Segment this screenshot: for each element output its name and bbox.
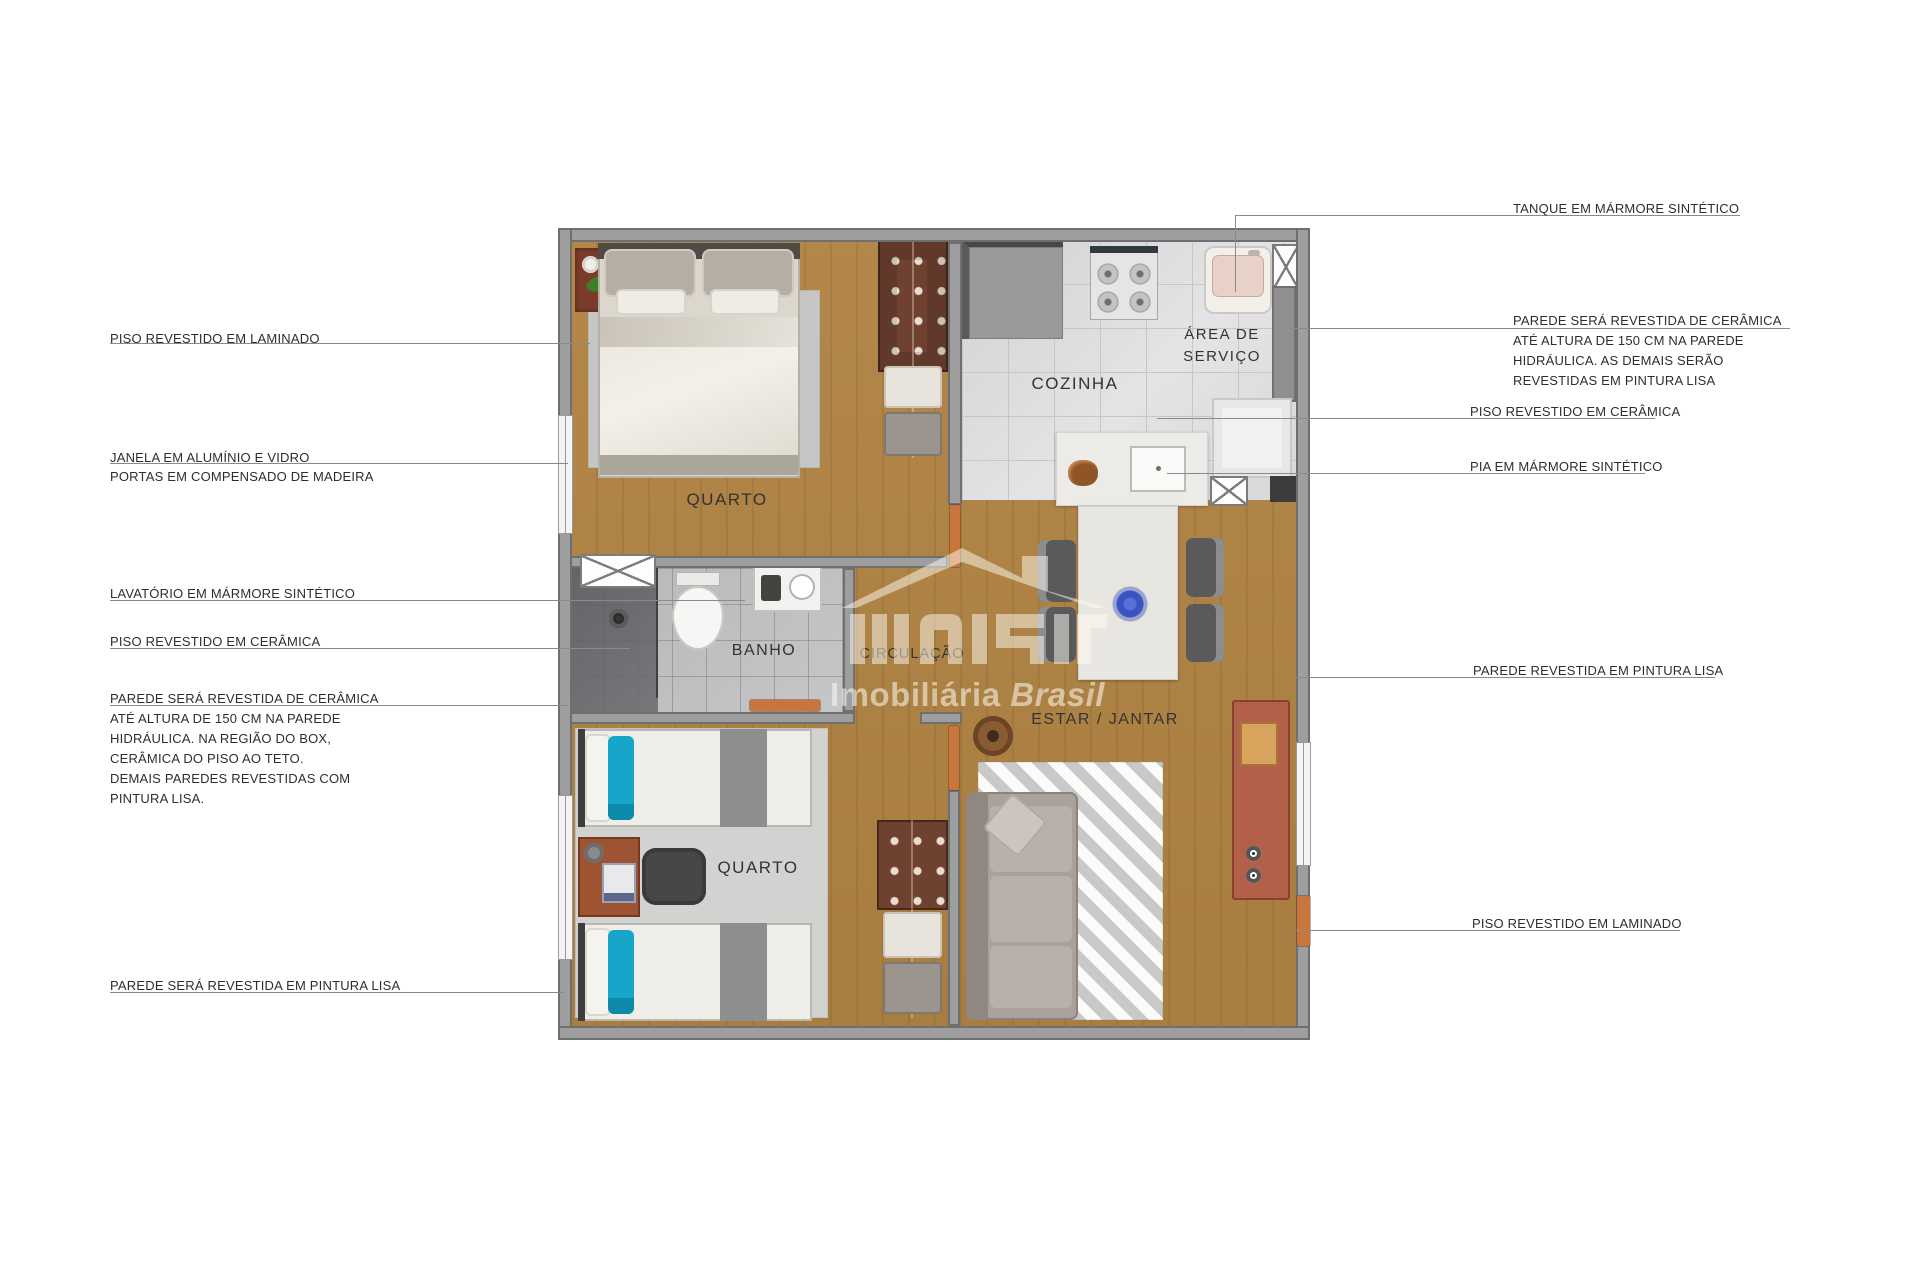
bread-basket-icon xyxy=(1068,460,1098,486)
annotation-pia: PIA EM MÁRMORE SINTÉTICO xyxy=(1470,457,1663,476)
wardrobe-box-gray xyxy=(883,962,942,1014)
room-label-quarto-top: QUARTO xyxy=(677,490,777,510)
wardrobe-box-white xyxy=(884,366,942,408)
dining-chair xyxy=(1186,538,1224,597)
pillow-blue xyxy=(608,930,634,1014)
area-servico-line1: ÁREA DE xyxy=(1162,324,1282,346)
dining-chair xyxy=(1038,540,1076,602)
pillow xyxy=(616,289,686,315)
wall-bathroom-bedroom2 xyxy=(570,712,855,724)
annotation-lavatorio: LAVATÓRIO EM MÁRMORE SINTÉTICO xyxy=(110,584,355,603)
area-servico-line2: SERVIÇO xyxy=(1162,346,1282,368)
annotation-line: HIDRÁULICA. AS DEMAIS SERÃO xyxy=(1513,351,1782,371)
dining-chair xyxy=(1038,607,1076,662)
laundry-tank xyxy=(1204,246,1272,314)
lamp-icon xyxy=(582,256,599,273)
annotation-line: ATÉ ALTURA DE 150 CM NA PAREDE xyxy=(110,709,379,729)
annotation-piso-ceramica-left: PISO REVESTIDO EM CERÂMICA xyxy=(110,632,320,651)
fridge xyxy=(962,240,1063,339)
washing-machine xyxy=(1212,398,1292,478)
wall-bedroom2-living xyxy=(948,790,960,1026)
annotation-line: LAVATÓRIO EM MÁRMORE SINTÉTICO xyxy=(110,584,355,603)
annotation-parede-pintura-right: PAREDE REVESTIDA EM PINTURA LISA xyxy=(1473,661,1723,680)
double-bed xyxy=(598,243,800,478)
bed-foot-band xyxy=(600,455,798,475)
sofa xyxy=(966,792,1078,1020)
office-chair xyxy=(642,848,706,905)
annotation-line: JANELA EM ALUMÍNIO E VIDRO xyxy=(110,448,374,467)
annotation-line: PISO REVESTIDO EM CERÂMICA xyxy=(1470,402,1680,421)
entry-door xyxy=(1297,896,1310,946)
annotation-line: PISO REVESTIDO EM LAMINADO xyxy=(110,329,320,348)
bed-runner xyxy=(720,729,767,827)
annotation-line: CERÂMICA DO PISO AO TETO. xyxy=(110,749,379,769)
room-label-area-servico: ÁREA DE SERVIÇO xyxy=(1162,324,1282,368)
pillow-blue xyxy=(608,736,634,820)
sofa-cushion xyxy=(990,876,1072,942)
desk xyxy=(578,837,640,917)
dining-chair xyxy=(1186,604,1224,662)
annotation-line: PORTAS EM COMPENSADO DE MADEIRA xyxy=(110,467,374,486)
stove-top-band xyxy=(1090,246,1158,253)
headboard xyxy=(578,923,585,1021)
room-label-estar-jantar: ESTAR / JANTAR xyxy=(1015,711,1195,729)
floor-plan-page: QUARTO COZINHA ÁREA DE SERVIÇO BANHO CIR… xyxy=(0,0,1920,1264)
living-window xyxy=(1296,742,1311,866)
annotation-piso-laminado-left: PISO REVESTIDO EM LAMINADO xyxy=(110,329,320,348)
sink-detail xyxy=(761,575,781,601)
annotation-line: PISO REVESTIDO EM CERÂMICA xyxy=(110,632,320,651)
flower-centerpiece-icon xyxy=(1112,586,1148,622)
annotation-line: ATÉ ALTURA DE 150 CM NA PAREDE xyxy=(1513,331,1782,351)
toilet-tank xyxy=(676,572,720,586)
room-label-banho: BANHO xyxy=(714,642,814,660)
annotation-line: PAREDE REVESTIDA EM PINTURA LISA xyxy=(1473,661,1723,680)
room-label-quarto-bottom: QUARTO xyxy=(708,858,808,878)
wall-bedroom1-kitchen xyxy=(948,242,962,505)
annotation-janela-portas: JANELA EM ALUMÍNIO E VIDRO PORTAS EM COM… xyxy=(110,448,374,486)
headboard xyxy=(578,729,585,827)
sink-faucet-icon xyxy=(1156,466,1161,471)
wardrobe-box-gray xyxy=(884,412,942,456)
bedroom1-door xyxy=(950,505,960,567)
annotation-line: PINTURA LISA. xyxy=(110,789,379,809)
shower-glass-line xyxy=(656,568,658,698)
speaker-icon xyxy=(1246,846,1261,861)
duct-dark-box xyxy=(1270,476,1296,502)
single-bed xyxy=(578,923,812,1021)
wardrobe-box-white xyxy=(883,912,942,958)
wall-bottom xyxy=(558,1026,1310,1040)
bathroom-window-x-icon xyxy=(580,554,656,588)
shower-dark-tiles xyxy=(570,568,658,712)
annotation-parede-ceramica-right: PAREDE SERÁ REVESTIDA DE CERÂMICA ATÉ AL… xyxy=(1513,311,1782,391)
blanket-fold xyxy=(600,317,798,347)
laptop-icon xyxy=(602,863,636,903)
annotation-line: REVESTIDAS EM PINTURA LISA xyxy=(1513,371,1782,391)
annotation-line: PAREDE SERÁ REVESTIDA DE CERÂMICA xyxy=(110,689,379,709)
annotation-tanque: TANQUE EM MÁRMORE SINTÉTICO xyxy=(1513,199,1739,218)
bathroom-shelf xyxy=(750,700,820,711)
tank-faucet-icon xyxy=(1248,250,1260,256)
annotation-line: PIA EM MÁRMORE SINTÉTICO xyxy=(1470,457,1663,476)
annotation-line: PAREDE SERÁ REVESTIDA EM PINTURA LISA xyxy=(110,976,400,995)
stove xyxy=(1090,246,1158,320)
room-label-circulacao: CIRCULAÇÃO xyxy=(837,646,987,662)
floor-plan: QUARTO COZINHA ÁREA DE SERVIÇO BANHO CIR… xyxy=(558,228,1310,1040)
bedroom2-window xyxy=(558,795,573,960)
wall-stub-hall xyxy=(920,712,962,724)
shaft-x-icon xyxy=(1210,476,1248,506)
sink-bowl-icon xyxy=(789,574,815,600)
table-center-dot xyxy=(987,730,999,742)
annotation-parede-ceramica-left: PAREDE SERÁ REVESTIDA DE CERÂMICA ATÉ AL… xyxy=(110,689,379,809)
round-side-table xyxy=(973,716,1013,756)
counter-sink xyxy=(1130,446,1186,492)
annotation-line: PAREDE SERÁ REVESTIDA DE CERÂMICA xyxy=(1513,311,1782,331)
tank-basin xyxy=(1212,255,1264,297)
room-label-cozinha: COZINHA xyxy=(1025,374,1125,394)
wall-bathroom-hall xyxy=(843,568,855,712)
tv-icon xyxy=(1240,722,1278,766)
annotation-line: DEMAIS PAREDES REVESTIDAS COM xyxy=(110,769,379,789)
bed-runner xyxy=(720,923,767,1021)
annotation-line: HIDRÁULICA. NA REGIÃO DO BOX, xyxy=(110,729,379,749)
annotation-line: PISO REVESTIDO EM LAMINADO xyxy=(1472,914,1682,933)
sofa-cushion xyxy=(990,946,1072,1008)
annotation-piso-laminado-right: PISO REVESTIDO EM LAMINADO xyxy=(1472,914,1682,933)
shower-head-icon xyxy=(609,609,628,628)
speaker-icon xyxy=(1246,868,1261,883)
leader-line-vertical xyxy=(1235,215,1236,292)
annotation-line: TANQUE EM MÁRMORE SINTÉTICO xyxy=(1513,199,1739,218)
annotation-parede-pintura-left: PAREDE SERÁ REVESTIDA EM PINTURA LISA xyxy=(110,976,400,995)
desk-lamp-icon xyxy=(584,843,604,863)
wall-top xyxy=(558,228,1310,242)
annotation-piso-ceramica-right: PISO REVESTIDO EM CERÂMICA xyxy=(1470,402,1680,421)
bathroom-sink-unit xyxy=(753,565,822,612)
bedroom1-window xyxy=(558,415,573,534)
single-bed xyxy=(578,729,812,827)
tv-console xyxy=(1232,700,1290,900)
pillow xyxy=(710,289,780,315)
bedroom2-door xyxy=(949,726,959,790)
